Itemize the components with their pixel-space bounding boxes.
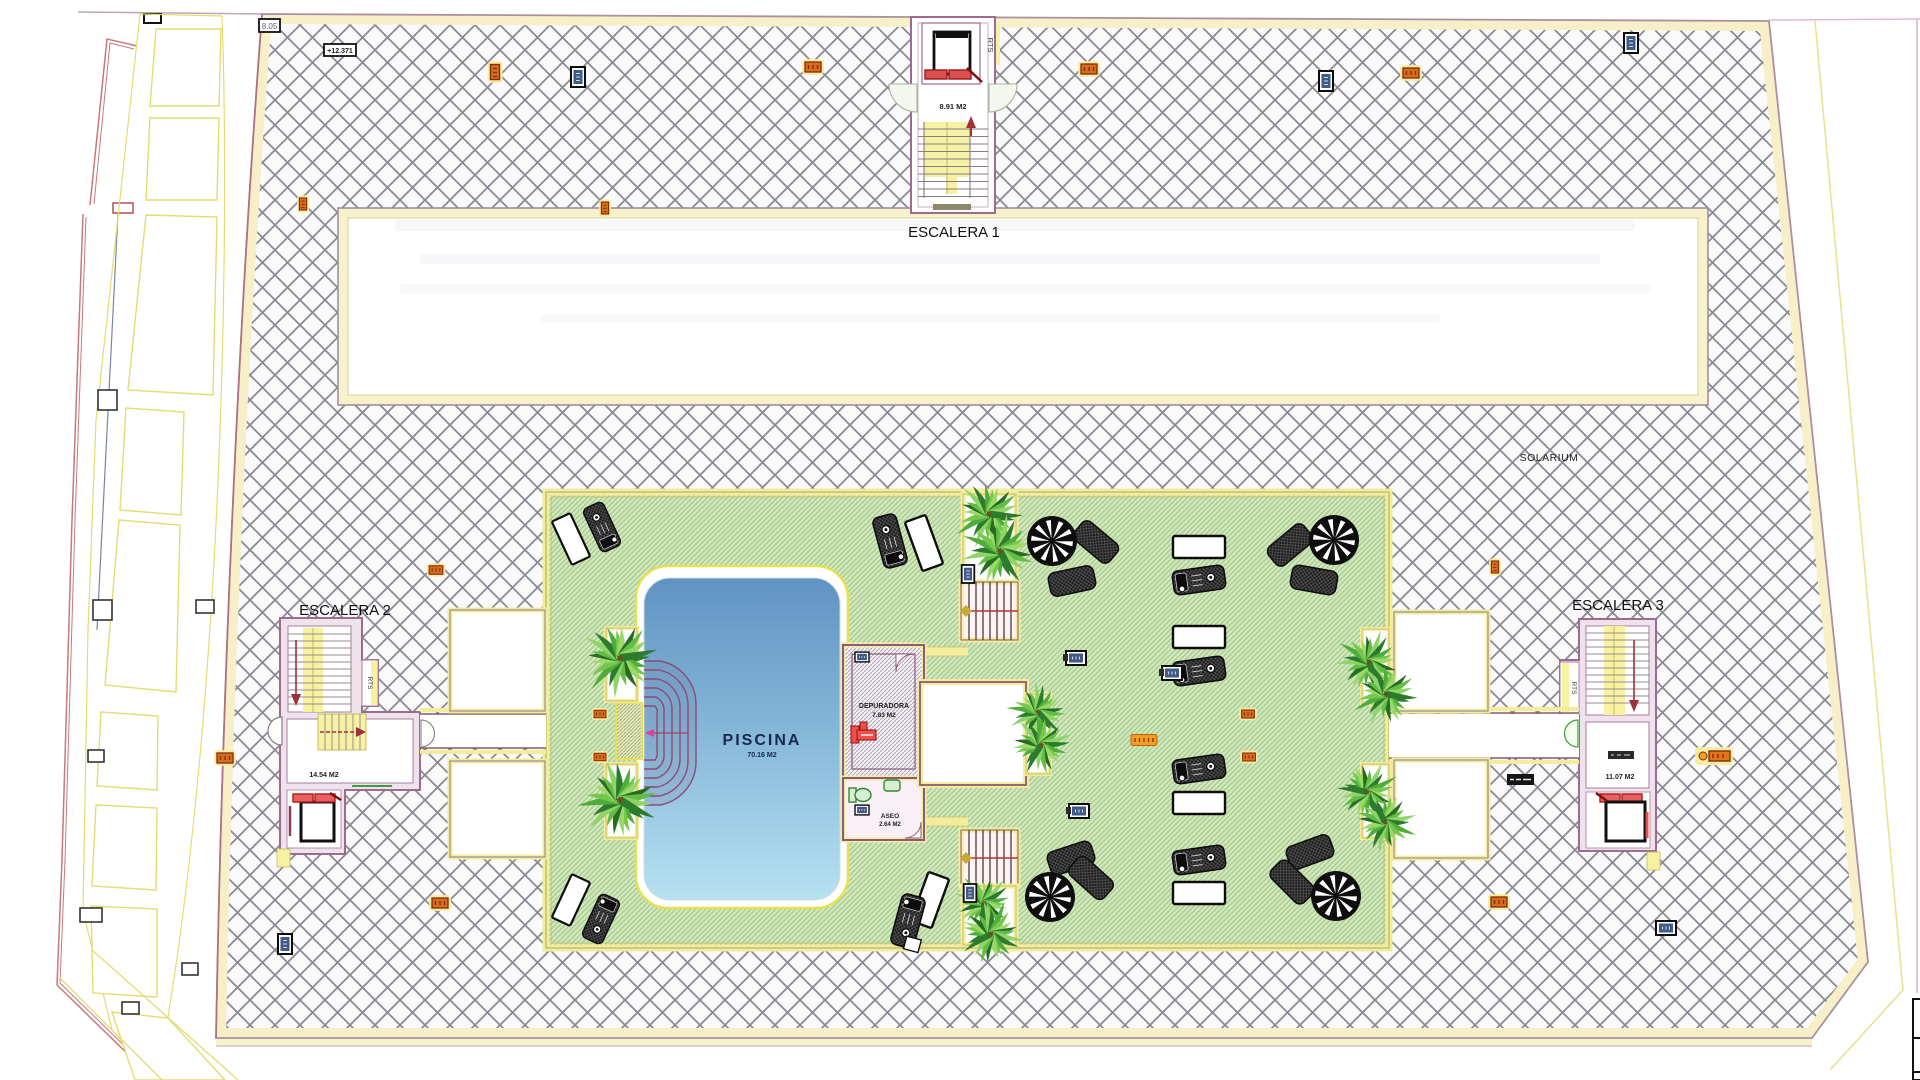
svg-text:+12.371: +12.371 bbox=[327, 48, 353, 55]
svg-text:ESCALERA 3: ESCALERA 3 bbox=[1572, 597, 1664, 614]
svg-text:RTS: RTS bbox=[366, 677, 373, 691]
svg-text:ASEO: ASEO bbox=[881, 813, 899, 820]
svg-text:7.83 M2: 7.83 M2 bbox=[872, 712, 896, 719]
svg-text:PISCINA: PISCINA bbox=[723, 732, 802, 749]
svg-text:14.54 M2: 14.54 M2 bbox=[309, 772, 338, 779]
svg-text:8.91 M2: 8.91 M2 bbox=[939, 102, 966, 111]
svg-text:DEPURADORA: DEPURADORA bbox=[859, 703, 909, 710]
svg-text:11.07 M2: 11.07 M2 bbox=[1606, 774, 1635, 781]
svg-text:8.05: 8.05 bbox=[262, 22, 278, 31]
svg-text:RTS: RTS bbox=[986, 38, 995, 53]
svg-text:2.64 M2: 2.64 M2 bbox=[879, 822, 901, 828]
svg-text:ESCALERA 1: ESCALERA 1 bbox=[908, 224, 1000, 241]
svg-text:70.16 M2: 70.16 M2 bbox=[747, 752, 776, 759]
svg-text:ESCALERA 2: ESCALERA 2 bbox=[299, 602, 391, 619]
svg-text:SOLARIUM: SOLARIUM bbox=[1520, 452, 1579, 464]
svg-text:RTS: RTS bbox=[1570, 682, 1577, 696]
